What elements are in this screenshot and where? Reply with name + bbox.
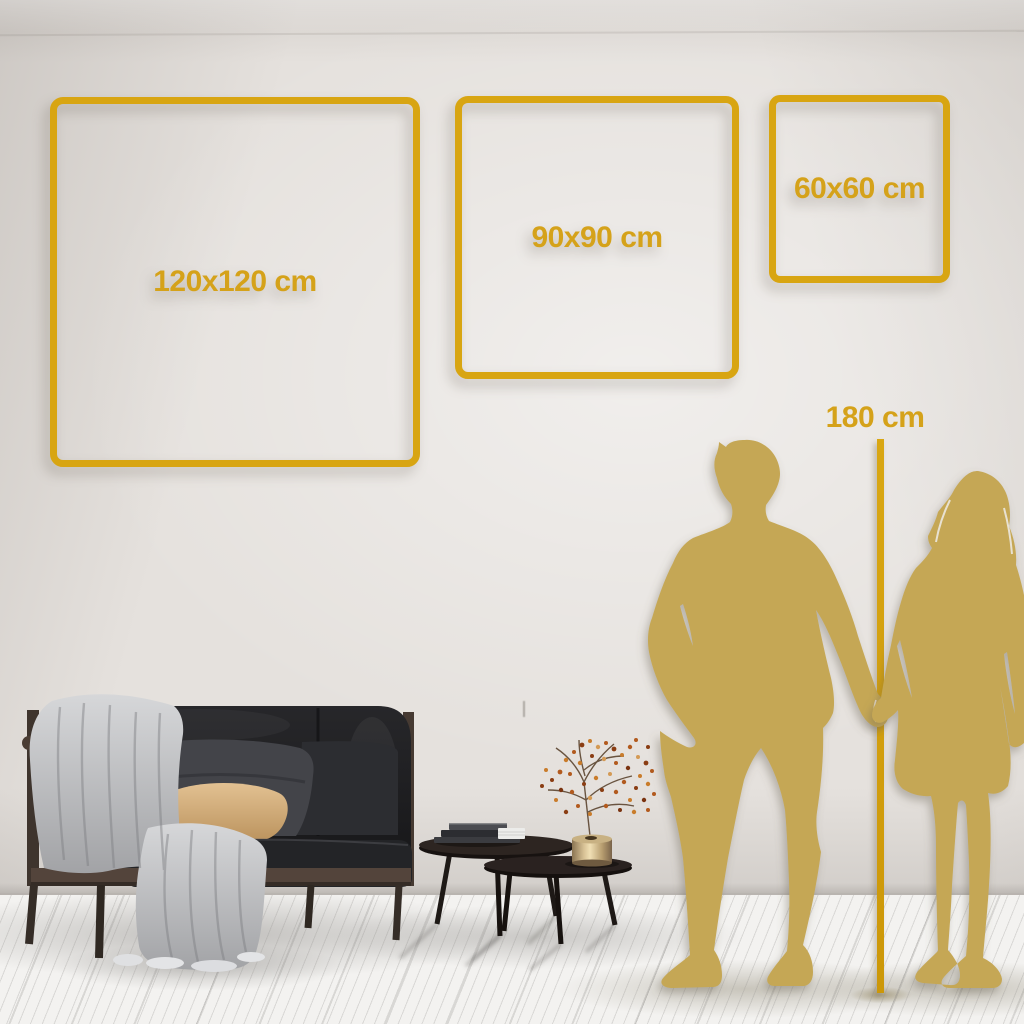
size-frame-90x90: 90x90 cm bbox=[455, 96, 739, 379]
size-label-60x60: 60x60 cm bbox=[794, 172, 925, 206]
wood-plank-floor bbox=[0, 895, 1024, 1024]
ceiling-sheen bbox=[0, 0, 1024, 32]
height-ruler-line bbox=[877, 439, 884, 993]
size-guide-scene: 120x120 cm 90x90 cm 60x60 cm 180 cm bbox=[0, 0, 1024, 1024]
wall-floor-edge bbox=[0, 893, 1024, 895]
baseboard-shadow bbox=[0, 883, 1024, 893]
height-marker-label: 180 cm bbox=[810, 401, 940, 435]
size-frame-120x120: 120x120 cm bbox=[50, 97, 420, 467]
size-frame-60x60: 60x60 cm bbox=[769, 95, 950, 283]
size-label-90x90: 90x90 cm bbox=[531, 221, 662, 255]
wall-mark bbox=[523, 701, 525, 717]
size-label-120x120: 120x120 cm bbox=[153, 265, 317, 299]
